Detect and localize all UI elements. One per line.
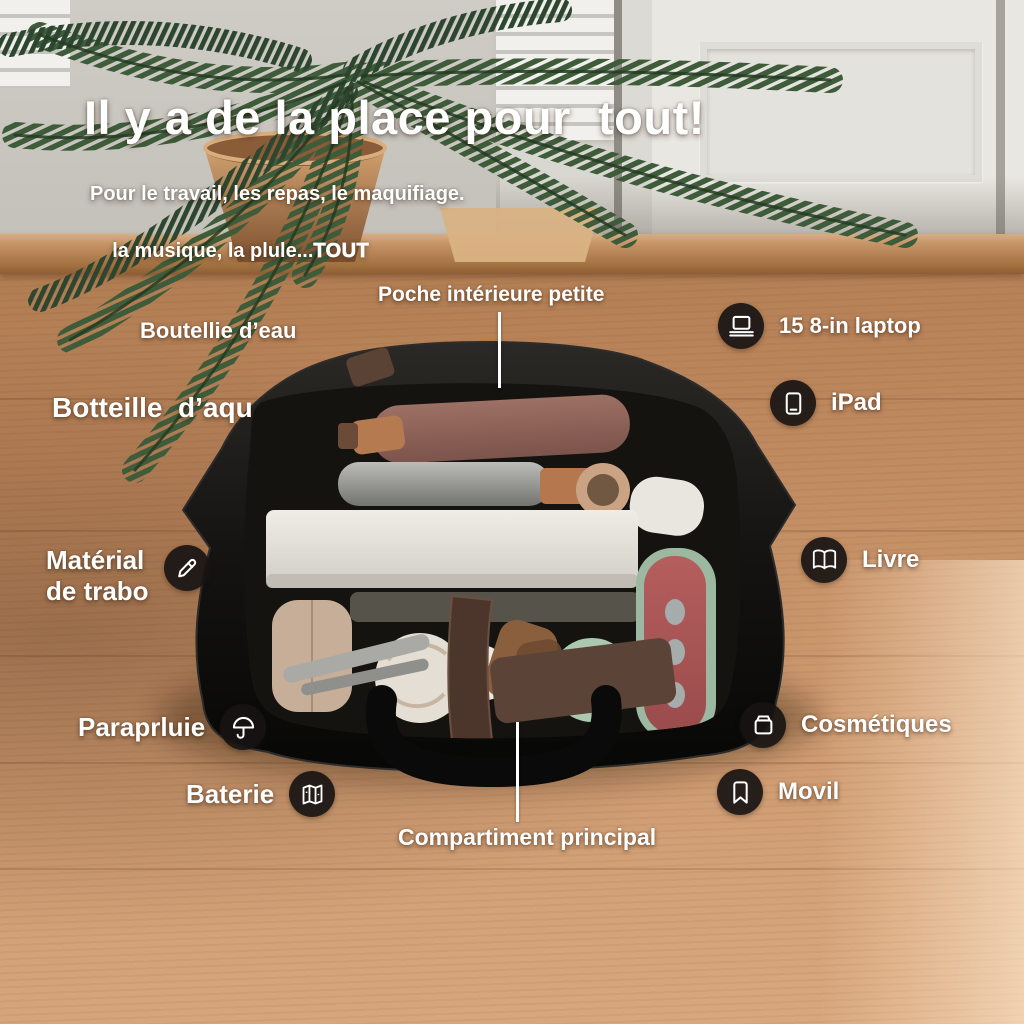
tube-cap [338,423,358,449]
callout-water-bottle-large: Botteille d’aqu [52,392,253,424]
callout-label: Compartiment principal [398,824,656,851]
callout-cosmetics: Cosmétiques [740,702,952,748]
icon-badge [717,769,763,815]
headline-title: Il y a de la place pour tout! [84,90,705,145]
tote-bag [183,342,795,772]
callout-main-compartment: Compartiment principal [398,824,656,851]
bookmark-icon [727,779,754,806]
callout-label: Baterie [186,779,274,810]
callout-label: iPad [831,389,882,417]
callout-laptop: 15 8-in laptop [718,303,921,349]
icon-badge [801,537,847,583]
callout-label: Boutellie d’eau [140,318,296,344]
callout-ipad: iPad [770,380,882,426]
subtitle-line2: la musique, la plule... [112,240,313,262]
callout-umbrella: Paraprluie [78,704,266,750]
leather-strap [448,596,492,740]
icon-badge [770,380,816,426]
icon-badge [220,704,266,750]
callout-label: Poche intérieure petite [378,283,604,307]
headline-subtitle: Pour le travail, les repas, le maquifiag… [90,180,465,294]
callout-label: Cosmétiques [801,711,952,739]
callout-mobile: Movil [717,769,839,815]
pointer-line-bottom [516,722,519,822]
callout-label: Paraprluie [78,712,205,743]
callout-label-line2: de trabo [46,576,149,607]
compact-icon [750,712,777,739]
map-icon [299,781,326,808]
olive-tray [350,592,640,622]
icon-badge [740,702,786,748]
callout-book: Livre [801,537,919,583]
callout-water-bottle-small: Boutellie d’eau [140,318,296,344]
laptop-box-edge [266,574,638,588]
steel-bottle [338,462,550,506]
copper-tube [350,415,406,456]
icon-badge [718,303,764,349]
callout-label: Livre [862,546,919,574]
callout-label-line1: Matérial [46,545,149,576]
pointer-line-top [498,312,501,388]
umbrella-icon [230,714,257,741]
callout-label: 15 8-in laptop [779,313,921,339]
book-icon [811,547,838,574]
infographic-poster: Il y a de la place pour tout! Pour le tr… [0,0,1024,1024]
callout-label: Movil [778,778,839,806]
callout-work-material: Matérial de trabo [46,545,210,606]
tablet-icon [780,390,807,417]
laptop-icon [728,313,755,340]
product-photo-illustration [0,0,1024,1024]
subtitle-line1: Pour le travail, les repas, le maquifiag… [90,183,465,205]
device-button [665,599,685,625]
icon-badge [289,771,335,817]
subtitle-emphasis: TOUT [313,240,369,262]
icon-badge [164,545,210,591]
callout-inner-pocket: Poche intérieure petite [378,283,604,307]
callout-label: Botteille d’aqu [52,392,253,424]
callout-battery: Baterie [186,771,335,817]
tan-cylinder-hole [587,474,619,506]
pencil-icon [173,555,200,582]
